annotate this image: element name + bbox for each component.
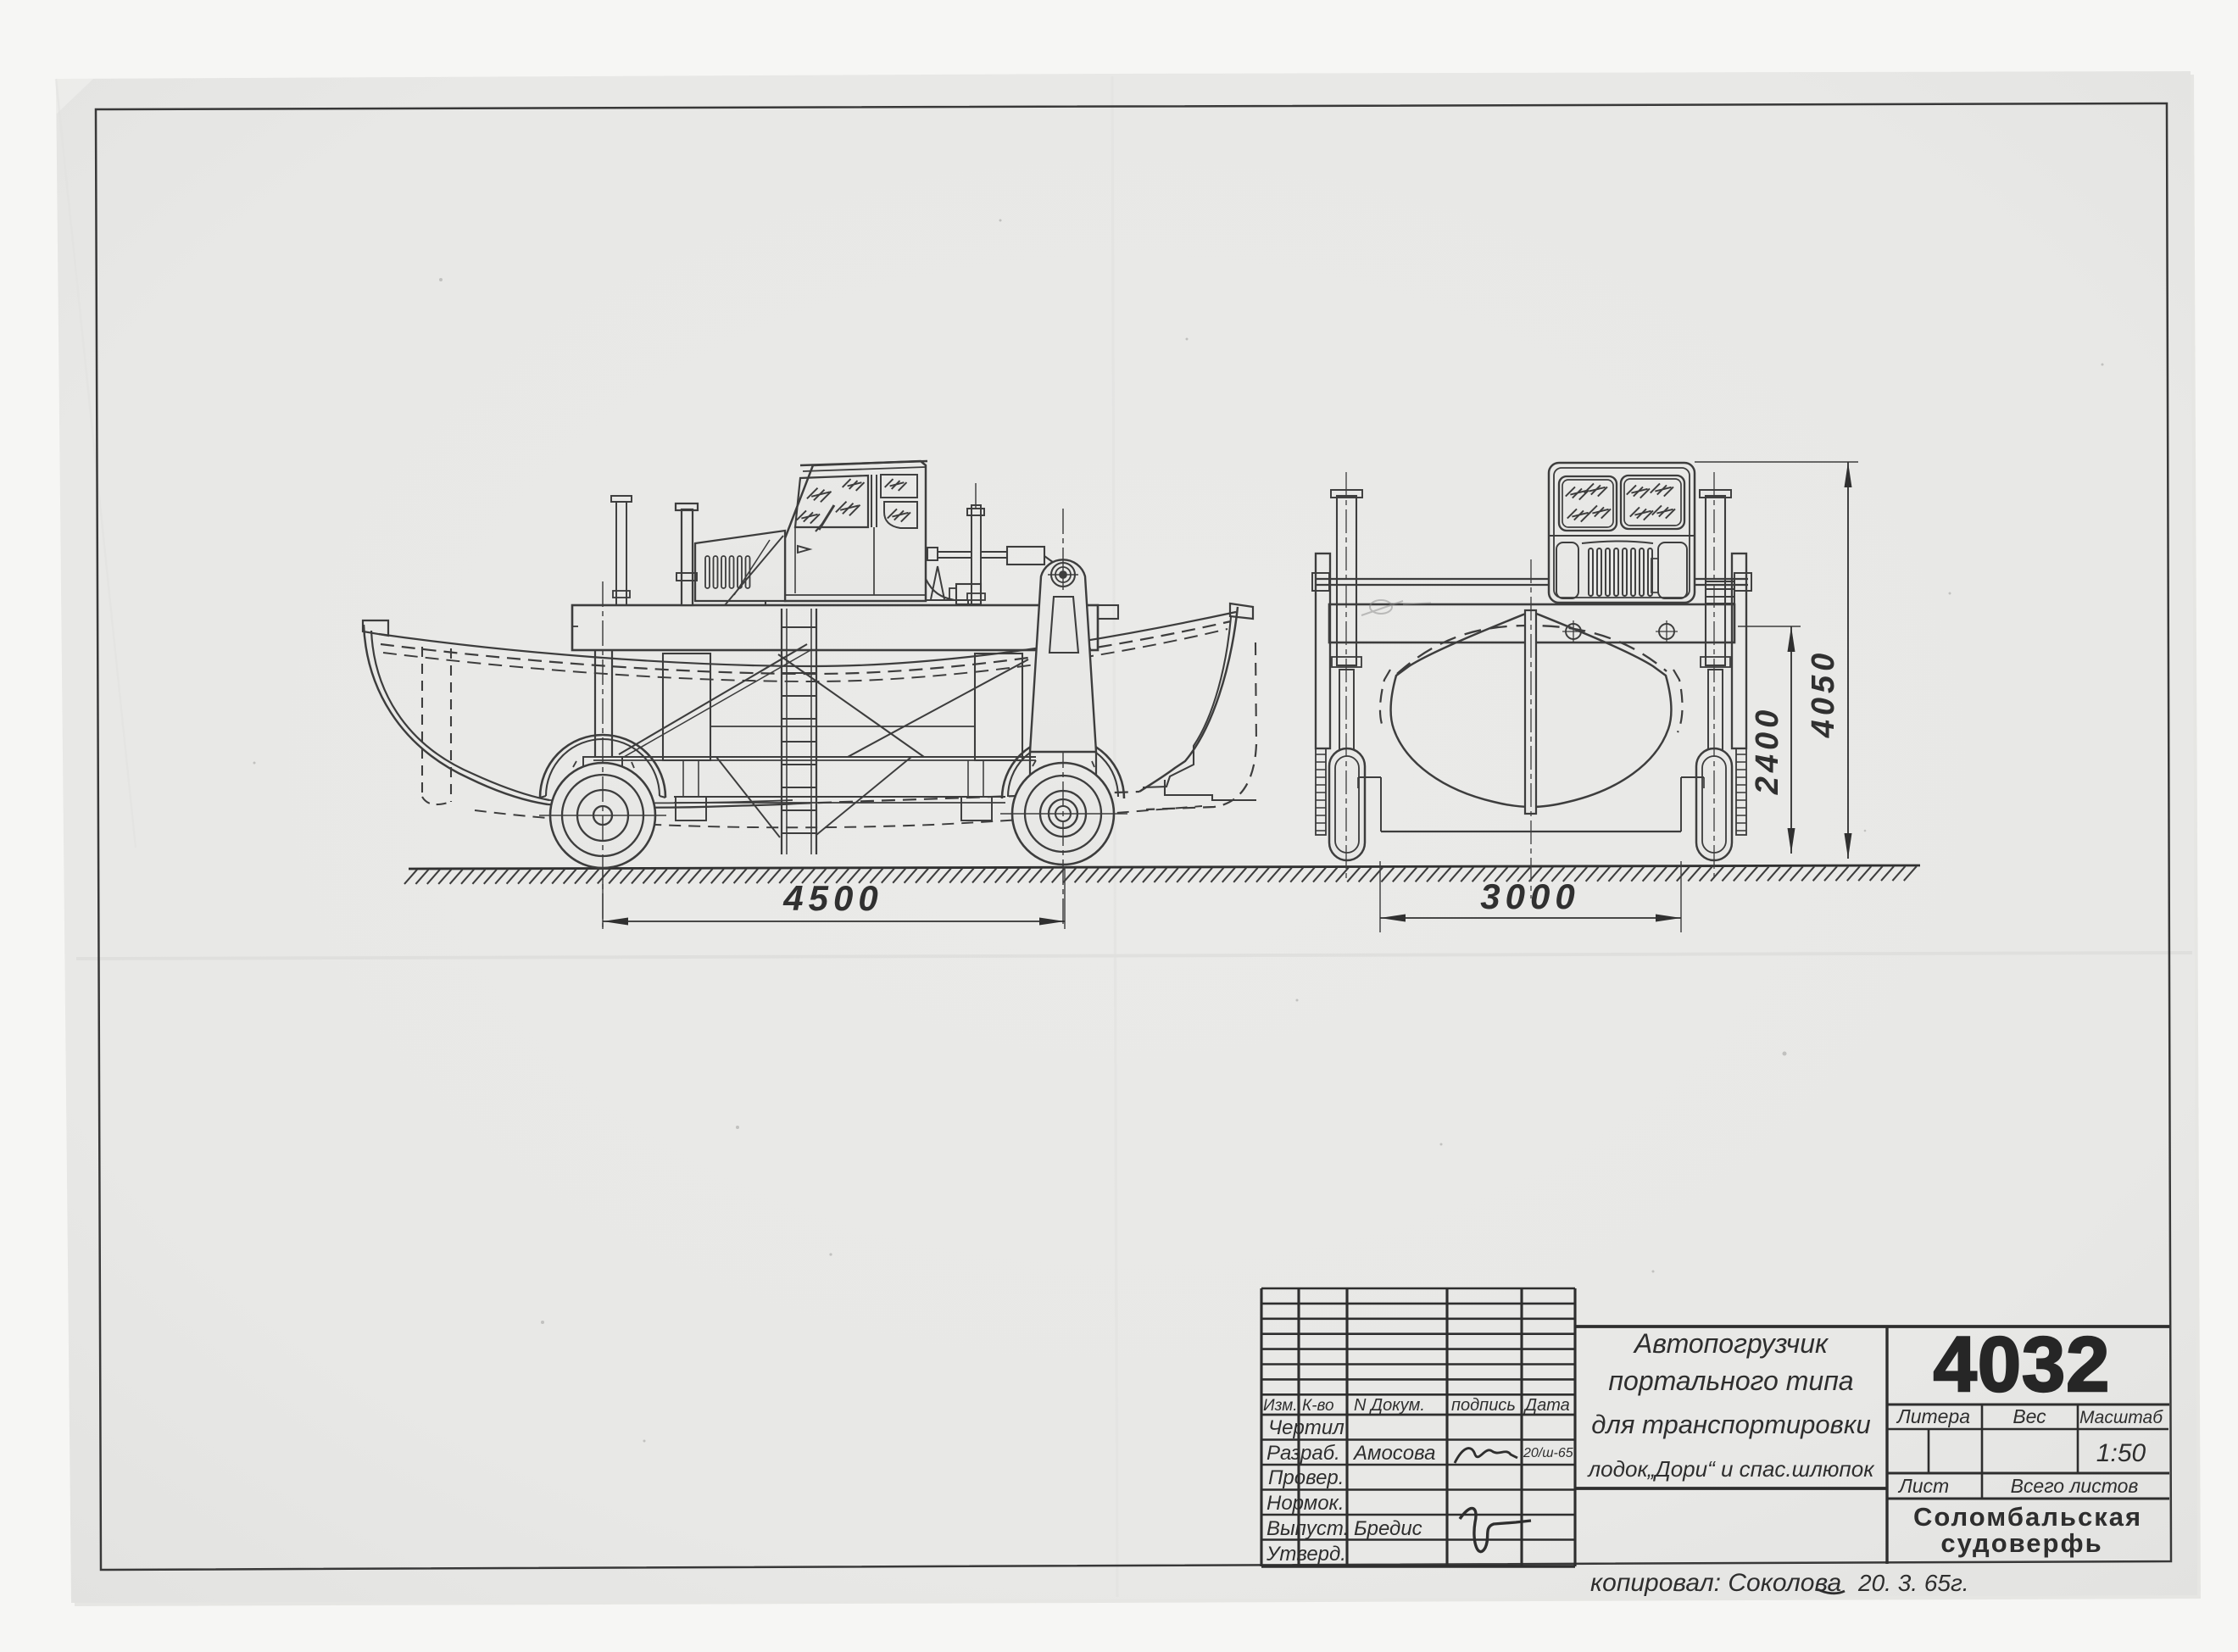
svg-text:лодок„Дори“ и спас.шлюпок: лодок„Дори“ и спас.шлюпок [1587, 1456, 1876, 1482]
svg-text:К-во: К-во [1302, 1397, 1334, 1415]
svg-text:Лист: Лист [1897, 1475, 1949, 1497]
svg-text:1:50: 1:50 [2096, 1439, 2146, 1467]
svg-text:для транспортировки: для транспортировки [1591, 1410, 1870, 1439]
svg-text:Литера: Литера [1896, 1405, 1970, 1427]
svg-text:Бредис: Бредис [1354, 1517, 1422, 1540]
svg-text:4032: 4032 [1934, 1321, 2111, 1408]
svg-text:копировал: Соколова: копировал: Соколова [1590, 1569, 1841, 1597]
svg-text:N Докум.: N Докум. [1354, 1396, 1425, 1415]
svg-text:4500: 4500 [782, 878, 882, 918]
svg-text:подпись: подпись [1451, 1396, 1516, 1415]
svg-text:Соломбальская: Соломбальская [1913, 1502, 2142, 1532]
svg-text:Утверд.: Утверд. [1266, 1543, 1346, 1566]
svg-text:Всего листов: Всего листов [2011, 1475, 2139, 1497]
svg-text:Провер.: Провер. [1268, 1466, 1344, 1489]
svg-text:Автопогрузчик: Автопогрузчик [1633, 1328, 1829, 1359]
svg-text:Вес: Вес [2013, 1405, 2046, 1427]
svg-text:Амосова: Амосова [1352, 1442, 1436, 1465]
svg-text:20. 3. 65г.: 20. 3. 65г. [1857, 1570, 1969, 1596]
svg-text:Масштаб: Масштаб [2079, 1408, 2163, 1427]
svg-text:4050: 4050 [1806, 649, 1841, 739]
svg-text:Дата: Дата [1523, 1396, 1570, 1415]
svg-text:Нормок.: Нормок. [1267, 1492, 1344, 1515]
svg-text:2400: 2400 [1750, 706, 1785, 796]
svg-text:3000: 3000 [1480, 876, 1579, 916]
svg-text:Изм.: Изм. [1263, 1397, 1298, 1415]
svg-text:судоверфь: судоверфь [1940, 1528, 2102, 1558]
svg-text:Выпуст.: Выпуст. [1267, 1517, 1349, 1540]
svg-text:20/ш-65: 20/ш-65 [1523, 1446, 1573, 1460]
svg-text:портального типа: портального типа [1608, 1366, 1853, 1396]
svg-text:Разраб.: Разраб. [1267, 1442, 1340, 1465]
svg-text:Чертил: Чертил [1268, 1416, 1344, 1439]
